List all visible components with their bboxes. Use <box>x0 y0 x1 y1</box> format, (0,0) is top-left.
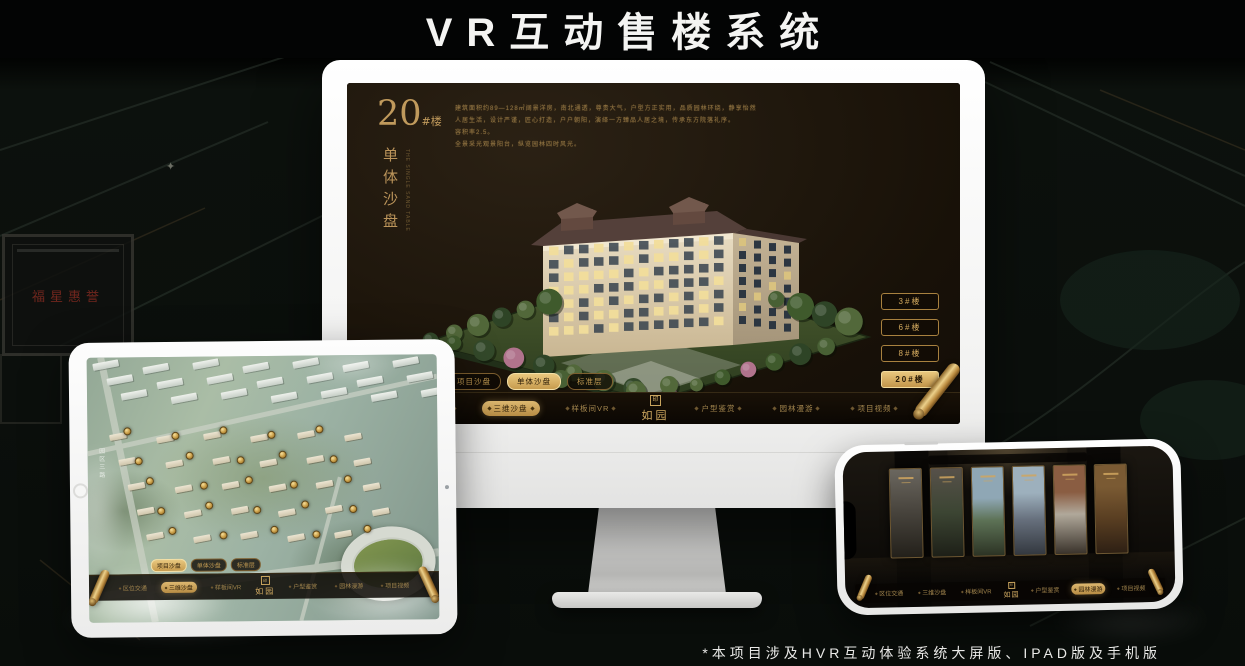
building-marker[interactable] <box>186 452 194 460</box>
scene-panel[interactable] <box>930 467 965 558</box>
tablet-device: 园区三路 项目沙盘 单体沙盘 标准层 区位交通 三维沙盘 样板间VR 印如园 户… <box>68 339 457 638</box>
building-marker[interactable] <box>205 502 213 510</box>
nav-item-label: 三维沙盘 <box>494 403 528 414</box>
building-marker[interactable] <box>349 505 357 513</box>
description-line: 建筑面积约89—128㎡阔景洋房，南北通透，尊贵大气，户型方正实用，品质园林环绕… <box>455 103 807 115</box>
nav-item-garden-tour[interactable]: 园林漫游 <box>1071 583 1105 595</box>
building-marker[interactable] <box>330 455 338 463</box>
nav-item-garden-tour[interactable]: 园林漫游 <box>331 580 367 591</box>
building-marker[interactable] <box>270 526 278 534</box>
building-marker[interactable] <box>363 525 371 533</box>
description-line: 人居生活，设计严谨，匠心打造，户户朝阳，演绎一方臻品人居之境，传承东方院落礼序。 <box>455 115 807 127</box>
subtab-group: 项目沙盘 单体沙盘 标准层 <box>447 373 613 390</box>
nav-item-label: 户型鉴赏 <box>1035 585 1059 595</box>
building-marker[interactable] <box>253 506 261 514</box>
building-marker[interactable] <box>312 530 320 538</box>
nav-item-model-room-vr[interactable]: 样板间VR <box>560 401 622 416</box>
background-plaque: 福星惠誉 <box>2 234 134 356</box>
brand-name: 如园 <box>641 407 669 423</box>
building-marker[interactable] <box>219 531 227 539</box>
nav-item-label: 园林漫游 <box>1078 584 1102 594</box>
nav-item-label: 区位交通 <box>123 583 147 592</box>
building-marker[interactable] <box>146 477 154 485</box>
camera-icon <box>445 485 449 489</box>
building-number-suffix: #楼 <box>422 115 442 128</box>
brand-logo: 印如园 <box>641 395 669 423</box>
scene-panel[interactable] <box>1053 464 1088 555</box>
building-description: 建筑面积约89—128㎡阔景洋房，南北通透，尊贵大气，户型方正实用，品质园林环绕… <box>455 103 807 151</box>
diamond-ornament-icon <box>210 586 213 589</box>
home-button[interactable] <box>73 483 88 498</box>
tab-project-sandtable[interactable]: 项目沙盘 <box>447 373 501 390</box>
seal-icon: 印 <box>650 395 661 406</box>
diamond-ornament-icon <box>875 592 878 595</box>
building-model <box>531 197 807 357</box>
nav-item-floorplans[interactable]: 户型鉴赏 <box>285 580 321 591</box>
diamond-ornament-icon <box>961 590 964 593</box>
diamond-ornament-icon <box>164 586 167 589</box>
diamond-ornament-icon <box>918 591 921 594</box>
floor-button-3[interactable]: 3#楼 <box>881 293 939 310</box>
diamond-ornament-icon <box>487 406 491 410</box>
building-marker[interactable] <box>157 507 165 515</box>
monitor-stand-base <box>552 592 762 608</box>
nav-item-3d-sandtable[interactable]: 三维沙盘 <box>482 401 540 416</box>
nav-item-label: 样板间VR <box>965 586 992 596</box>
floor-button-20[interactable]: 20#楼 <box>881 371 939 388</box>
tab-project-sandtable[interactable]: 项目沙盘 <box>151 559 187 572</box>
nav-item-project-video[interactable]: 项目视频 <box>1114 582 1148 594</box>
brand-logo: 印如园 <box>255 576 275 597</box>
building-number: 20 <box>377 94 422 134</box>
nav-item-label: 项目视频 <box>1121 583 1145 593</box>
tab-single-sandtable[interactable]: 单体沙盘 <box>507 373 561 390</box>
nav-item-label: 样板间VR <box>572 403 610 414</box>
building-marker[interactable] <box>267 431 275 439</box>
nav-item-project-video[interactable]: 项目视频 <box>845 401 903 416</box>
road-label: 园区三路 <box>97 448 106 480</box>
phone-screen: 区位交通 三维沙盘 样板间VR 印如园 户型鉴赏 园林漫游 项目视频 <box>842 446 1175 609</box>
diamond-ornament-icon <box>530 406 534 410</box>
diamond-ornament-icon <box>816 406 820 410</box>
nav-item-label: 三维沙盘 <box>169 583 193 592</box>
nav-item-floorplans[interactable]: 户型鉴赏 <box>689 401 747 416</box>
scene-panel-gallery <box>889 464 1129 559</box>
building-marker[interactable] <box>279 451 287 459</box>
brand-name: 如园 <box>1003 589 1019 599</box>
nav-item-label: 区位交通 <box>879 588 903 598</box>
diamond-ornament-icon <box>1074 588 1077 591</box>
building-marker[interactable] <box>245 476 253 484</box>
building-marker[interactable] <box>135 457 143 465</box>
diamond-ornament-icon <box>738 406 742 410</box>
nav-item-model-room-vr[interactable]: 样板间VR <box>958 585 995 597</box>
nav-item-label: 园林漫游 <box>339 581 363 590</box>
floor-button-6[interactable]: 6#楼 <box>881 319 939 336</box>
building-marker[interactable] <box>123 427 131 435</box>
building-marker[interactable] <box>200 482 208 490</box>
building-marker[interactable] <box>168 527 176 535</box>
nav-item-location[interactable]: 区位交通 <box>872 587 906 599</box>
poster-canvas: 福星惠誉 ✦ 20#楼 单体沙盘 THE SINGLE SAND TABLE 建… <box>0 0 1245 666</box>
nav-item-label: 园林漫游 <box>779 403 813 414</box>
diamond-ornament-icon <box>695 406 699 410</box>
diamond-ornament-icon <box>118 587 121 590</box>
diamond-ornament-icon <box>773 406 777 410</box>
diamond-ornament-icon <box>894 406 898 410</box>
nav-item-label: 样板间VR <box>215 582 241 591</box>
tab-standard-floor[interactable]: 标准层 <box>567 373 613 390</box>
brand-logo: 印如园 <box>1003 581 1019 599</box>
description-line: 容积率2.5。 <box>455 127 807 139</box>
building-marker[interactable] <box>237 456 245 464</box>
title-bar: VR互动售楼系统 <box>0 0 1245 58</box>
nav-item-label: 户型鉴赏 <box>293 581 317 590</box>
building-marker[interactable] <box>344 475 352 483</box>
scene-panel[interactable] <box>971 466 1006 557</box>
building-marker[interactable] <box>290 481 298 489</box>
nav-item-label: 户型鉴赏 <box>701 403 735 414</box>
nav-item-location[interactable]: 区位交通 <box>115 582 151 593</box>
nav-item-garden-tour[interactable]: 园林漫游 <box>767 401 825 416</box>
compass-star-icon: ✦ <box>166 160 175 173</box>
diamond-ornament-icon <box>851 406 855 410</box>
background-frame <box>0 354 62 424</box>
bottom-nav-bar: 区位交通 三维沙盘 样板间VR 印如园 户型鉴赏 园林漫游 项目视频 <box>89 571 439 601</box>
building-3d-viewport[interactable] <box>411 147 881 409</box>
scene-panel[interactable] <box>1012 465 1047 556</box>
scene-panel[interactable] <box>1094 464 1129 555</box>
monitor-stand-neck <box>588 506 726 594</box>
nav-item-3d-sandtable[interactable]: 三维沙盘 <box>161 582 197 593</box>
subtab-group: 项目沙盘 单体沙盘 标准层 <box>151 558 261 572</box>
page-title-caption: THE SINGLE SAND TABLE <box>404 149 410 232</box>
seal-icon: 印 <box>1008 581 1015 588</box>
building-marker[interactable] <box>315 425 323 433</box>
nav-item-floorplans[interactable]: 户型鉴赏 <box>1028 584 1062 596</box>
phone-notch <box>842 501 856 559</box>
page-title: VR互动售楼系统 <box>412 0 834 58</box>
footnote: *本项目涉及HVR互动体验系统大屏版、IPAD版及手机版 <box>702 643 1161 663</box>
tab-single-sandtable[interactable]: 单体沙盘 <box>191 558 227 571</box>
phone-device: 区位交通 三维沙盘 样板间VR 印如园 户型鉴赏 园林漫游 项目视频 <box>834 438 1183 615</box>
plaque-frame: 福星惠誉 <box>12 244 124 346</box>
nav-item-3d-sandtable[interactable]: 三维沙盘 <box>915 586 949 598</box>
building-marker[interactable] <box>171 432 179 440</box>
page-title-vertical: 单体沙盘 <box>380 147 401 235</box>
diamond-ornament-icon <box>1117 587 1120 590</box>
tab-standard-floor[interactable]: 标准层 <box>231 558 261 571</box>
nav-item-model-room-vr[interactable]: 样板间VR <box>207 581 245 592</box>
seal-icon: 印 <box>261 576 270 585</box>
floor-button-8[interactable]: 8#楼 <box>881 345 939 362</box>
phone-side-button <box>904 441 938 445</box>
building-marker[interactable] <box>219 426 227 434</box>
diamond-ornament-icon <box>612 406 616 410</box>
diamond-ornament-icon <box>1031 589 1034 592</box>
brand-name: 如园 <box>255 586 275 597</box>
diamond-ornament-icon <box>335 584 338 587</box>
diamond-ornament-icon <box>565 406 569 410</box>
building-number-label: 20#楼 <box>377 97 442 132</box>
tablet-screen: 园区三路 项目沙盘 单体沙盘 标准层 区位交通 三维沙盘 样板间VR 印如园 户… <box>87 354 440 623</box>
nav-item-label: 三维沙盘 <box>922 587 946 597</box>
floor-button-group: 3#楼 6#楼 8#楼 20#楼 <box>881 293 939 388</box>
scene-panel[interactable] <box>889 468 924 559</box>
diamond-ornament-icon <box>289 585 292 588</box>
plaque-text: 福星惠誉 <box>32 286 104 305</box>
nav-item-project-video[interactable]: 项目视频 <box>377 579 413 590</box>
nav-item-label: 项目视频 <box>857 403 891 414</box>
diamond-ornament-icon <box>381 584 384 587</box>
nav-item-label: 项目视频 <box>385 580 409 589</box>
building-marker[interactable] <box>301 501 309 509</box>
